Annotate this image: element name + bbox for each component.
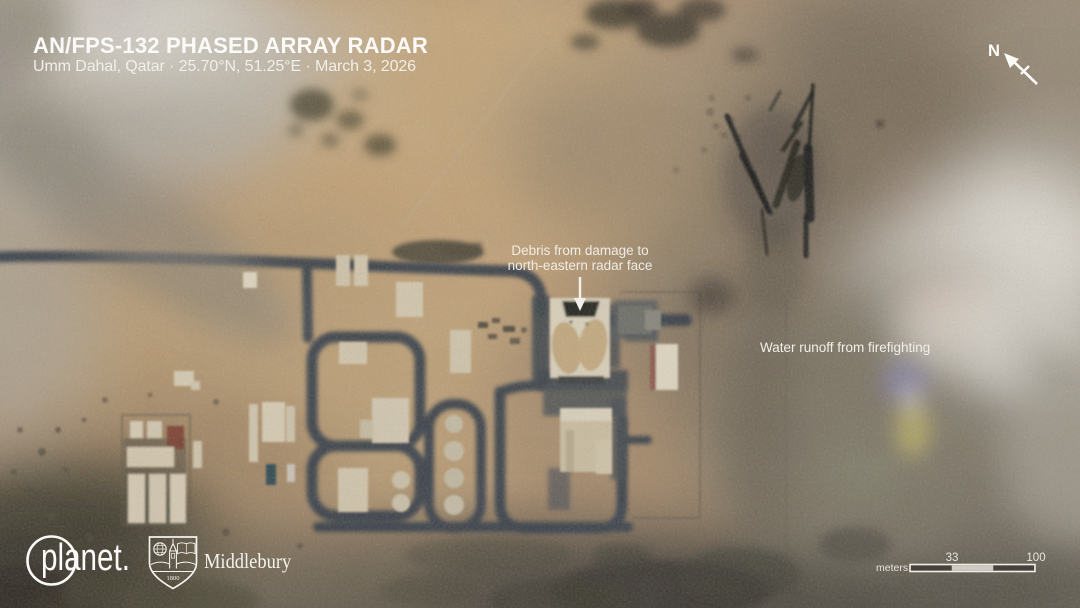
svg-text:1800: 1800 [167, 575, 180, 582]
